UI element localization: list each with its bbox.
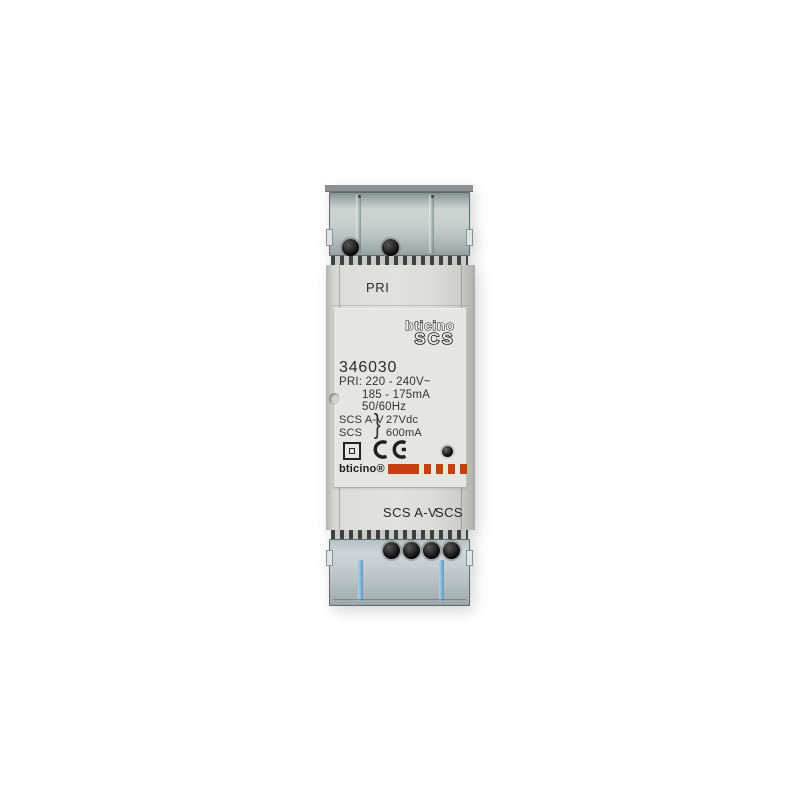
bottom-terminal-cover xyxy=(329,539,470,606)
din-module-346030: PRI bticino SCS 346030 PRI: 220 - 240V~ … xyxy=(325,183,476,607)
bticino-footer-logo: bticino® xyxy=(339,463,467,474)
hinge-pin xyxy=(431,195,434,198)
molding-notch xyxy=(329,393,340,405)
wire-clip xyxy=(439,560,444,601)
cover-seam xyxy=(333,599,466,600)
screw-terminal-icon xyxy=(423,542,440,559)
screw-terminal-icon xyxy=(403,542,420,559)
din-rail-edge xyxy=(325,185,473,192)
label-panel: bticino SCS 346030 PRI: 220 - 240V~ 185 … xyxy=(333,308,467,488)
output-value-voltage: 27Vdc xyxy=(386,414,418,426)
cover-latch-left xyxy=(326,550,333,566)
brace-glyph: } xyxy=(374,410,381,438)
logo-flag-bar xyxy=(388,464,419,474)
cover-latch-right xyxy=(466,550,473,566)
scs-logo: SCS xyxy=(415,331,455,349)
logo-flag-segment xyxy=(436,464,443,474)
screw-terminal-icon xyxy=(342,239,359,256)
primary-terminal-label: PRI xyxy=(366,280,389,295)
bottom-terminal-label-scs-av: SCS A-V xyxy=(383,505,437,520)
bottom-terminal-label-scs: SCS xyxy=(435,505,463,520)
device-body: PRI bticino SCS 346030 PRI: 220 - 240V~ … xyxy=(326,265,475,530)
spec-primary-voltage: PRI: 220 - 240V~ xyxy=(339,376,431,388)
output-name-scs: SCS xyxy=(339,427,362,439)
cover-latch-left xyxy=(326,229,333,246)
logo-flag-segment xyxy=(424,464,431,474)
molding-seam xyxy=(331,305,470,306)
screw-terminal-icon xyxy=(383,542,400,559)
logo-flag-segment xyxy=(460,464,467,474)
spec-frequency: 50/60Hz xyxy=(362,401,406,413)
product-photo-background: PRI bticino SCS 346030 PRI: 220 - 240V~ … xyxy=(0,0,800,800)
top-terminal-cover xyxy=(329,192,470,256)
bticino-footer-wordmark: bticino® xyxy=(339,463,385,475)
logo-flag-segment xyxy=(448,464,455,474)
model-number: 346030 xyxy=(339,359,397,377)
vent-grille-top xyxy=(331,256,468,265)
vent-grille-bottom xyxy=(331,530,468,539)
class-ii-insulation-inner xyxy=(349,448,355,454)
spec-current: 185 - 175mA xyxy=(362,389,430,401)
screw-terminal-icon xyxy=(382,239,399,256)
wire-clip xyxy=(358,560,363,601)
cover-latch-right xyxy=(466,229,473,246)
class-ii-insulation-icon xyxy=(343,442,361,460)
led-indicator xyxy=(442,446,453,457)
glass-reflection xyxy=(429,195,434,253)
ce-mark-icon xyxy=(370,438,408,461)
hinge-pin xyxy=(358,195,361,198)
screw-terminal-icon xyxy=(443,542,460,559)
